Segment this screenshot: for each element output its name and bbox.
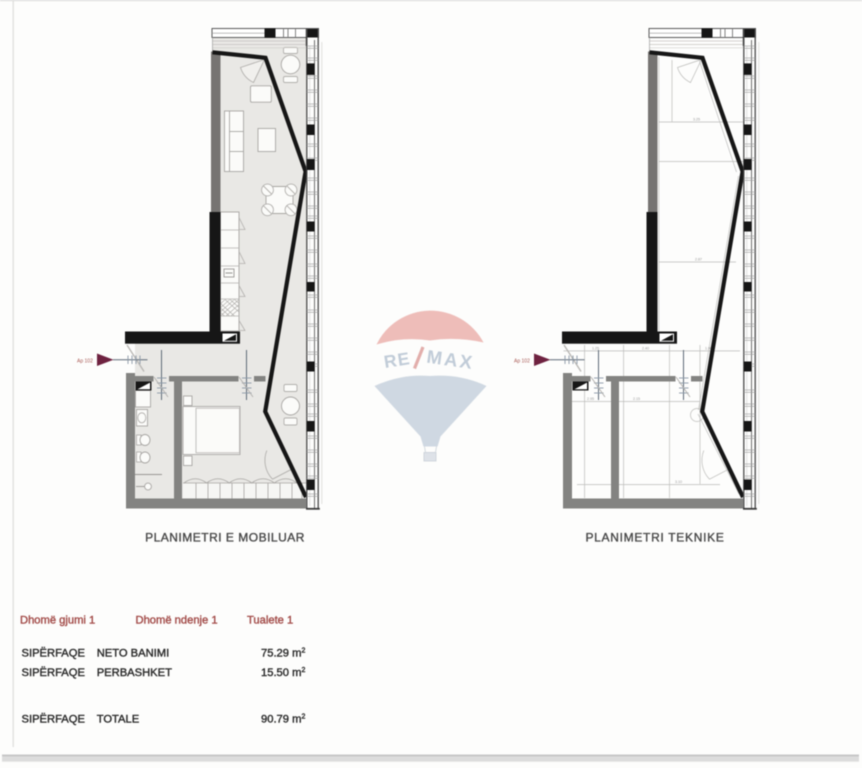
svg-text:2.87: 2.87 — [695, 258, 702, 262]
svg-text:75.29 m2: 75.29 m2 — [261, 648, 305, 660]
svg-text:PLANIMETRI TEKNIKE: PLANIMETRI TEKNIKE — [585, 531, 724, 545]
svg-text:RE: RE — [382, 348, 412, 372]
svg-text:Dhomë ndenje 1: Dhomë ndenje 1 — [136, 615, 218, 627]
svg-text:NETO BANIMI: NETO BANIMI — [97, 648, 170, 660]
svg-text:SIPËRFAQE: SIPËRFAQE — [22, 667, 85, 679]
svg-text:Tualete 1: Tualete 1 — [247, 615, 293, 627]
svg-text:2.95: 2.95 — [587, 397, 594, 401]
svg-text:TOTALE: TOTALE — [97, 714, 139, 726]
svg-text:1.25: 1.25 — [592, 347, 599, 351]
svg-text:3.25: 3.25 — [693, 118, 700, 122]
svg-text:90.79 m2: 90.79 m2 — [261, 714, 305, 726]
svg-text:SIPËRFAQE: SIPËRFAQE — [22, 648, 85, 660]
svg-text:Dhomë gjumi 1: Dhomë gjumi 1 — [20, 615, 95, 627]
svg-text:2.15: 2.15 — [633, 397, 640, 401]
svg-text:SIPËRFAQE: SIPËRFAQE — [22, 714, 85, 726]
svg-text:PERBASHKET: PERBASHKET — [97, 667, 172, 679]
svg-text:15.50 m2: 15.50 m2 — [261, 667, 305, 679]
svg-text:2.40: 2.40 — [642, 347, 649, 351]
svg-text:PLANIMETRI E MOBILUAR: PLANIMETRI E MOBILUAR — [145, 531, 305, 545]
svg-text:MAX: MAX — [425, 346, 475, 373]
svg-text:3.10: 3.10 — [675, 480, 682, 484]
